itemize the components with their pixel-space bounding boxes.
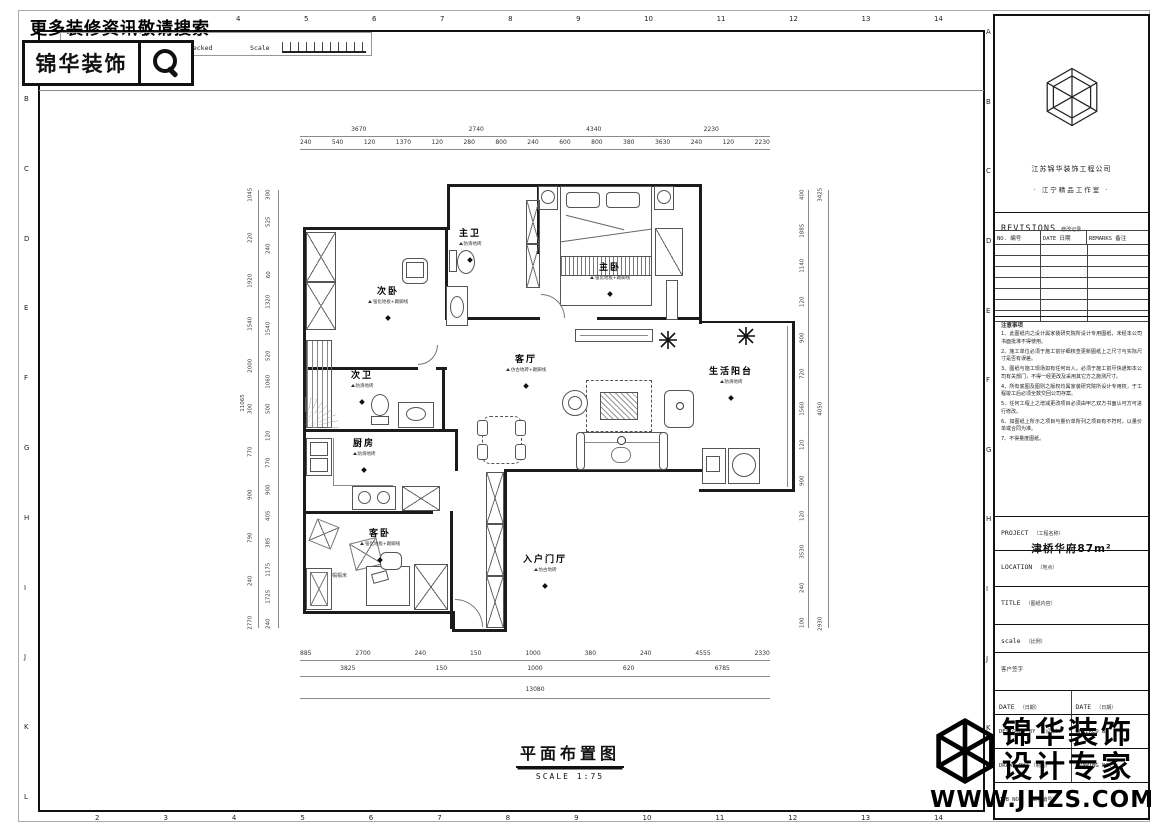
dim-line bbox=[300, 660, 770, 661]
room-label-master-bed: 主卧 强化地板+踢脚线 bbox=[582, 264, 638, 300]
room-label-master-bath: 主卫 防滑地砖 bbox=[448, 230, 492, 266]
plan-scale-note: SCALE 1:75 bbox=[470, 772, 670, 781]
wall-segment bbox=[303, 611, 455, 614]
wall-segment bbox=[792, 321, 795, 492]
dim-line-v bbox=[828, 190, 829, 628]
watermark-cube-icon bbox=[932, 718, 998, 784]
finish-caret-icon bbox=[360, 542, 364, 545]
wall-segment bbox=[447, 184, 450, 230]
dim-left-total: 11065 bbox=[240, 394, 246, 412]
revisions-rows bbox=[995, 244, 1148, 322]
pillow bbox=[606, 192, 640, 208]
burner bbox=[358, 491, 371, 504]
project-field: PROJECT （工程名称） 津桥华府87m² bbox=[995, 516, 1148, 550]
elevation-marker-icon bbox=[359, 399, 365, 405]
wall-segment bbox=[699, 321, 795, 323]
nightstand-lamp bbox=[657, 190, 671, 204]
wardrobe bbox=[306, 232, 336, 282]
room-label-living: 客厅 仿古地砖+踢脚线 bbox=[498, 356, 554, 392]
wall-segment bbox=[504, 469, 507, 632]
tv-line bbox=[580, 335, 648, 336]
person-head bbox=[617, 436, 626, 445]
toilet-tank bbox=[371, 416, 389, 425]
room-label-guest-bed: 客卧 强化地板+踢脚线 bbox=[352, 530, 408, 566]
room-label-balcony: 生活阳台 防滑地砖 bbox=[698, 368, 764, 404]
sofa-arm bbox=[576, 432, 585, 470]
elevation-marker-icon bbox=[385, 315, 391, 321]
notes-list: 1、此图纸内之设计属家装研究院所设计专用图纸，未经本公司书面批准不得使用。2、施… bbox=[1001, 331, 1142, 444]
revisions-colheads: NO. 编号 DATE 日期 REMARKS 备注 bbox=[995, 230, 1148, 244]
dim-right-outer: 342540502930 bbox=[816, 192, 826, 626]
dim-line-v bbox=[258, 190, 259, 628]
dim-line bbox=[300, 149, 770, 150]
title-field: TITLE （图纸内容） bbox=[995, 586, 1148, 624]
room-label-kitchen: 厨房 防滑地砖 bbox=[340, 440, 388, 476]
date-fields: DATE （日期） DATE （日期） bbox=[995, 690, 1148, 714]
wall-segment bbox=[303, 227, 450, 230]
sofa-arm bbox=[659, 432, 668, 470]
room-label-entry: 入户门厅 仿古地砖 bbox=[506, 556, 584, 592]
grid-letters-right: ABCDEFGHIJKL bbox=[986, 28, 991, 802]
scale-field: scale （比例） bbox=[995, 624, 1148, 652]
entry-cabinet bbox=[486, 576, 504, 628]
wardrobe bbox=[414, 564, 448, 610]
kitchen-sink bbox=[310, 458, 328, 472]
finish-caret-icon bbox=[506, 368, 510, 371]
dining-chair bbox=[515, 444, 526, 460]
brand-logo-text: 锦华装饰 bbox=[36, 48, 128, 78]
dim-bottom-total: 13080 bbox=[300, 686, 770, 693]
header-scale-label: Scale bbox=[250, 44, 270, 52]
wall-segment bbox=[442, 367, 445, 432]
finish-caret-icon bbox=[351, 384, 355, 387]
desk bbox=[366, 566, 410, 606]
finish-caret-icon bbox=[534, 568, 538, 571]
plan-title: 平面布置图 bbox=[516, 740, 624, 768]
entry-cabinet bbox=[486, 472, 504, 524]
finish-caret-icon bbox=[590, 276, 594, 279]
drawing-sheet: 4567891011121314 234567891011121314 BCDE… bbox=[0, 0, 1158, 827]
dining-chair bbox=[515, 420, 526, 436]
coffee-table-inner bbox=[568, 396, 582, 410]
grid-numbers-bottom: 234567891011121314 bbox=[95, 814, 943, 822]
kitchen-sink bbox=[310, 442, 328, 456]
balcony-sink-basin bbox=[706, 456, 720, 472]
dim-right-inner: 4001885114012090072015601209001203530240… bbox=[798, 192, 808, 626]
wall-segment bbox=[452, 629, 507, 632]
room-label-bath2: 次卫 防滑地砖 bbox=[338, 372, 386, 408]
wall-segment bbox=[455, 429, 458, 471]
dim-line-v bbox=[278, 190, 279, 628]
wardrobe-slant bbox=[655, 228, 683, 276]
plant-icon bbox=[736, 326, 756, 346]
burner bbox=[377, 491, 390, 504]
magnifier-handle-icon bbox=[166, 66, 178, 78]
finish-caret-icon bbox=[720, 380, 724, 383]
finish-caret-icon bbox=[353, 452, 357, 455]
dining-chair bbox=[477, 444, 488, 460]
grid-numbers-top: 4567891011121314 bbox=[236, 15, 943, 23]
client-sign-field: 客户签字 bbox=[995, 652, 1148, 690]
scale-bar bbox=[282, 42, 366, 53]
company-name: 江苏锦华装饰工程公司 bbox=[995, 164, 1148, 174]
brand-logo: 锦华装饰 bbox=[22, 40, 141, 86]
dim-line bbox=[300, 676, 770, 677]
kitchen-cabinet bbox=[402, 486, 440, 511]
grid-letters-left: BCDEFGHIJKL bbox=[24, 95, 29, 801]
wall-segment bbox=[450, 511, 453, 629]
vanity-sink bbox=[406, 407, 426, 421]
tatami-label: 榻榻米 bbox=[332, 572, 347, 579]
dim-bottom-row2: 382515010006206785 bbox=[300, 666, 770, 672]
dim-line bbox=[300, 698, 770, 699]
dim-line-v bbox=[808, 190, 809, 628]
wall-segment bbox=[303, 511, 433, 514]
elevation-marker-icon bbox=[377, 557, 383, 563]
wall-segment bbox=[699, 184, 702, 324]
wall-segment bbox=[303, 429, 456, 432]
wall-segment bbox=[699, 489, 795, 492]
finish-caret-icon bbox=[459, 242, 463, 245]
watermark-line2: 设计专家 bbox=[1002, 752, 1134, 784]
brand-watermark: 锦华装饰 设计专家 WWW.JHZS.COM bbox=[930, 716, 1158, 816]
plant-icon bbox=[658, 330, 678, 350]
location-field: LOCATION （地点） bbox=[995, 550, 1148, 586]
counter-line bbox=[333, 438, 334, 486]
finish-caret-icon bbox=[368, 300, 372, 303]
wardrobe bbox=[526, 200, 540, 244]
balcony-window-line bbox=[787, 326, 788, 487]
plan-title-block: 平面布置图 SCALE 1:75 bbox=[470, 740, 670, 781]
guest-closet-x bbox=[310, 572, 328, 606]
notes-section: 注意事项 1、此图纸内之设计属家装研究院所设计专用图纸，未经本公司书面批准不得使… bbox=[995, 316, 1148, 516]
person-body bbox=[611, 447, 631, 463]
cabinet bbox=[666, 280, 678, 320]
entry-cabinet bbox=[486, 524, 504, 576]
desk-chair-inner bbox=[406, 262, 424, 278]
dim-bottom-row1: 8852700240150100038024045552330 bbox=[300, 651, 770, 657]
dim-left-inner: 3005252406013201540520106050012077090040… bbox=[264, 192, 274, 626]
notes-title: 注意事项 bbox=[1001, 321, 1142, 329]
pillow bbox=[566, 192, 600, 208]
company-cube-logo-icon bbox=[1041, 66, 1103, 128]
elevation-marker-icon bbox=[361, 467, 367, 473]
elevation-marker-icon bbox=[542, 583, 548, 589]
elevation-marker-icon bbox=[467, 257, 473, 263]
elevation-marker-icon bbox=[523, 383, 529, 389]
person-head bbox=[676, 402, 684, 410]
header-rule bbox=[39, 90, 984, 91]
nightstand-lamp bbox=[541, 190, 555, 204]
dim-line bbox=[300, 136, 770, 137]
wardrobe bbox=[306, 282, 336, 330]
wardrobe bbox=[526, 244, 540, 288]
title-block: 江苏锦华装饰工程公司 · 江宁精品工作室 · REVISIONS 修改记录 NO… bbox=[993, 14, 1150, 820]
wall-segment bbox=[597, 317, 702, 320]
rug-center bbox=[600, 392, 638, 420]
dim-left-outer: 10452201920154020003007709007902402770 bbox=[246, 192, 256, 626]
company-studio: · 江宁精品工作室 · bbox=[995, 184, 1148, 194]
washer-drum bbox=[732, 453, 756, 477]
elevation-marker-icon bbox=[607, 291, 613, 297]
room-label-bed2: 次卧 强化地板+踢脚线 bbox=[360, 288, 416, 324]
dim-top-details: 2405401201370120280800240600800380363024… bbox=[300, 140, 770, 146]
dining-chair bbox=[477, 420, 488, 436]
magnifier-box bbox=[138, 40, 194, 86]
watermark-url: WWW.JHZS.COM bbox=[930, 788, 1154, 812]
elevation-marker-icon bbox=[728, 395, 734, 401]
watermark-line1: 锦华装饰 bbox=[1002, 718, 1134, 750]
dim-top-totals: 3670274043402230 bbox=[300, 127, 770, 133]
revisions-header: REVISIONS 修改记录 bbox=[995, 212, 1148, 230]
vanity-sink bbox=[450, 296, 464, 318]
